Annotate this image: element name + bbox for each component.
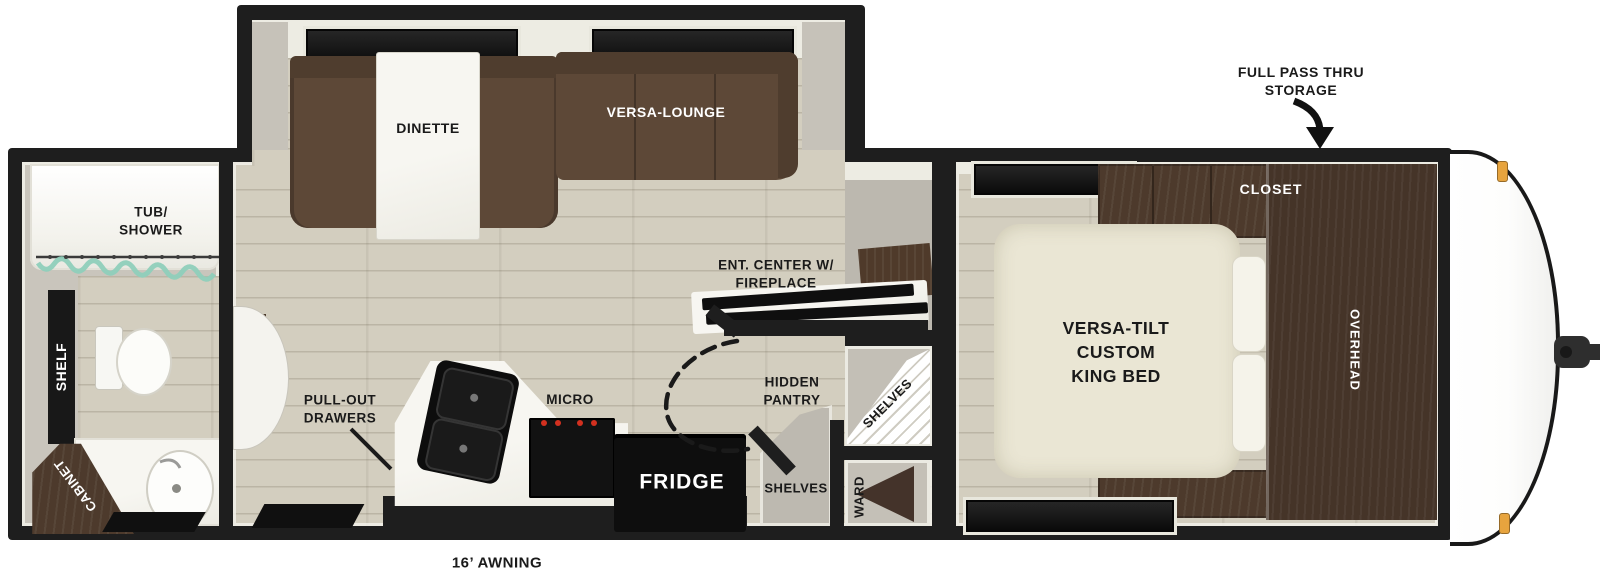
burner-knob <box>555 420 561 426</box>
bed-pillow-bottom <box>1232 354 1266 452</box>
shelves-ward-divider <box>843 446 932 460</box>
living-window <box>252 504 365 528</box>
hitch-icon <box>1554 336 1600 368</box>
slideout-sidewall-left <box>252 22 288 150</box>
dinette-bench-left <box>290 56 382 228</box>
burner-knob <box>577 420 583 426</box>
pantry-shelves-label: SHELVES <box>764 481 827 498</box>
bedroom-window-bottom <box>966 500 1174 532</box>
slideout-sidewall-right <box>802 22 845 150</box>
burner-knob <box>591 420 597 426</box>
bathroom-window <box>102 512 206 532</box>
full-pass-thru-arrow-icon <box>1294 101 1334 149</box>
dinette-label: DINETTE <box>396 119 459 137</box>
dinette-bench-right <box>474 56 558 228</box>
shelf-label: SHELF <box>52 343 70 391</box>
marker-light-bottom <box>1499 513 1510 534</box>
marker-light-top <box>1497 161 1508 182</box>
alcove-shelves-divider <box>845 330 932 346</box>
toilet-bowl <box>116 328 172 396</box>
closet-label: CLOSET <box>1240 180 1303 198</box>
burner-knob <box>541 420 547 426</box>
bedroom-divider-wall <box>932 162 956 526</box>
dinette-table <box>376 52 480 240</box>
overhead-label: OVERHEAD <box>1346 309 1363 391</box>
versa-lounge-arm <box>778 52 798 178</box>
pantry-side-wall <box>830 420 844 526</box>
awning-label: 16’ AWNING <box>452 553 542 573</box>
bed-pillow-top <box>1232 256 1266 352</box>
ent-alcove-band <box>845 162 932 180</box>
micro-label: MICRO <box>546 391 594 409</box>
front-cap <box>1450 150 1560 546</box>
bathroom-divider-wall <box>219 162 233 526</box>
king-bed-label: VERSA-TILT CUSTOM KING BED <box>1063 316 1170 388</box>
full-pass-thru-label: FULL PASS THRU STORAGE <box>1238 63 1364 99</box>
versa-lounge-label: VERSA-LOUNGE <box>607 103 726 121</box>
ent-center-label: ENT. CENTER W/ FIREPLACE <box>718 256 834 291</box>
tub-shower-label: TUB/ SHOWER <box>119 203 183 238</box>
ward-label: WARD <box>852 476 869 518</box>
pull-out-drawers-label: PULL-OUT DRAWERS <box>304 391 377 426</box>
hidden-pantry-label: HIDDEN PANTRY <box>764 373 821 408</box>
sink-drain <box>172 484 181 493</box>
fridge-label: FRIDGE <box>639 468 724 495</box>
range-stove <box>529 418 615 498</box>
rv-floorplan: TUB/ SHOWER SHELF CABINET DINETTE VERSA-… <box>0 0 1600 582</box>
versa-lounge-back <box>556 52 798 74</box>
